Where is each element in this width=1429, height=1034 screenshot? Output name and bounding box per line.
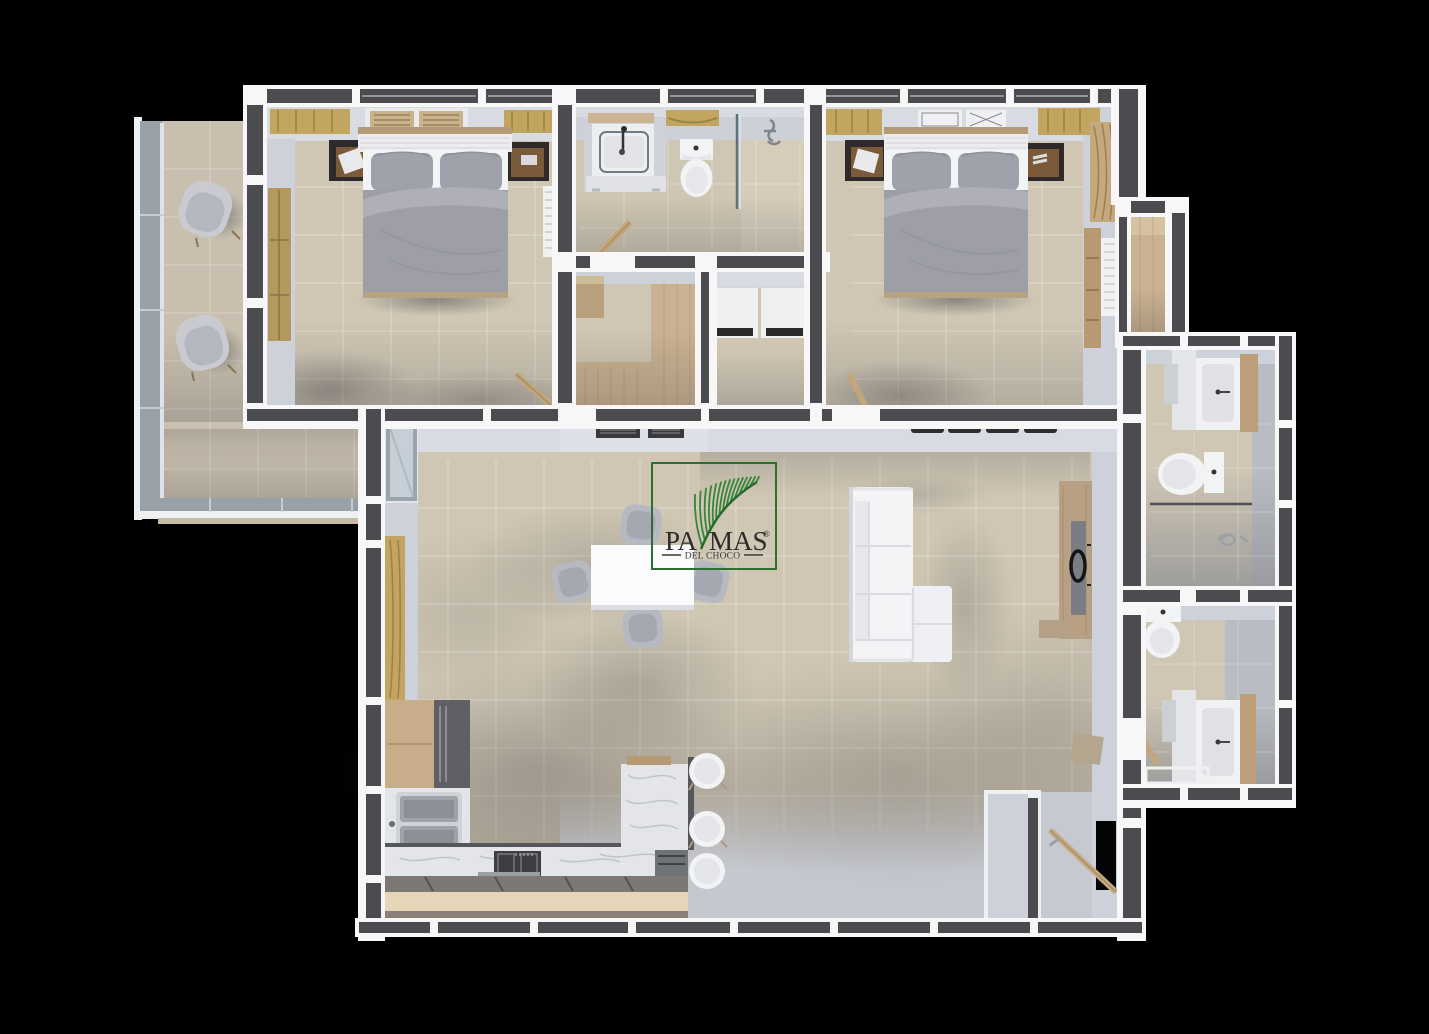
svg-text:DEL CHOCO: DEL CHOCO	[685, 552, 741, 562]
svg-text:®: ®	[763, 529, 770, 539]
